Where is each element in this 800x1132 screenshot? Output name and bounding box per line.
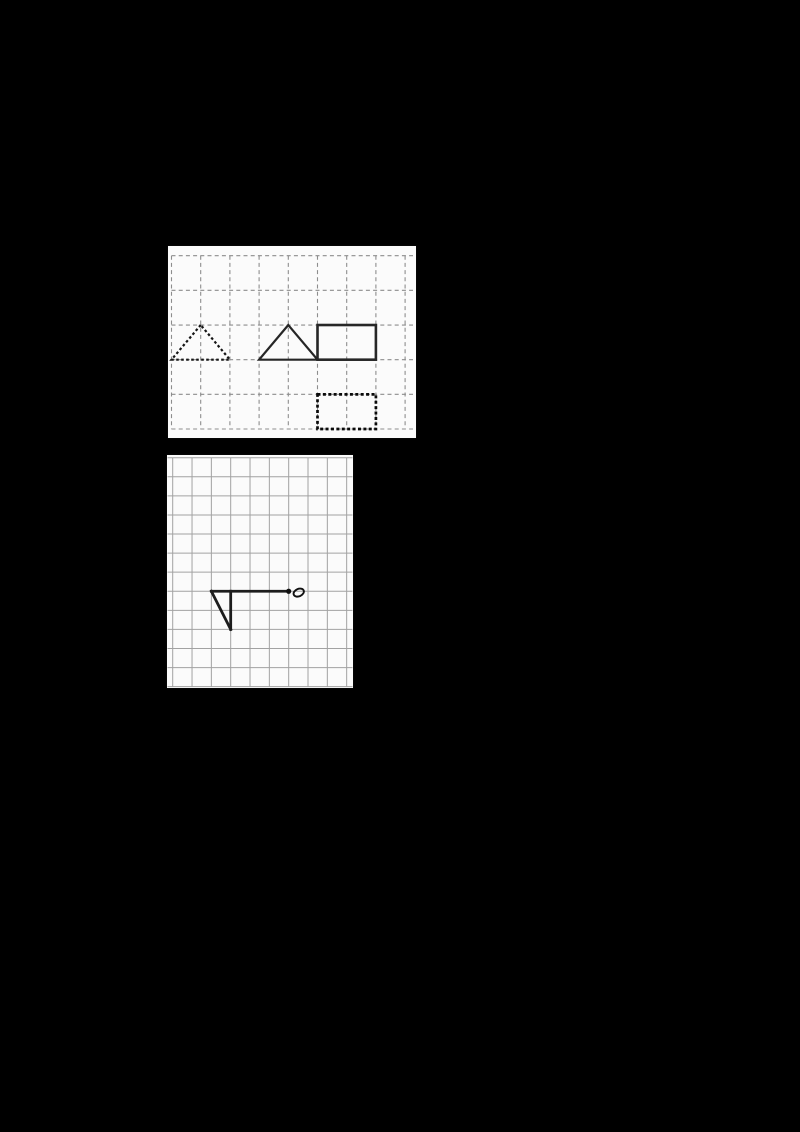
small-o-mark: [292, 587, 305, 598]
reference-grid-panel: [168, 246, 416, 438]
reference-grid-figure: [168, 246, 416, 438]
rotation-point-dot: [286, 589, 291, 594]
worksheet-page: [0, 0, 800, 1132]
drawing-grid-panel: [167, 455, 353, 688]
drawing-grid-figure: [167, 455, 353, 688]
